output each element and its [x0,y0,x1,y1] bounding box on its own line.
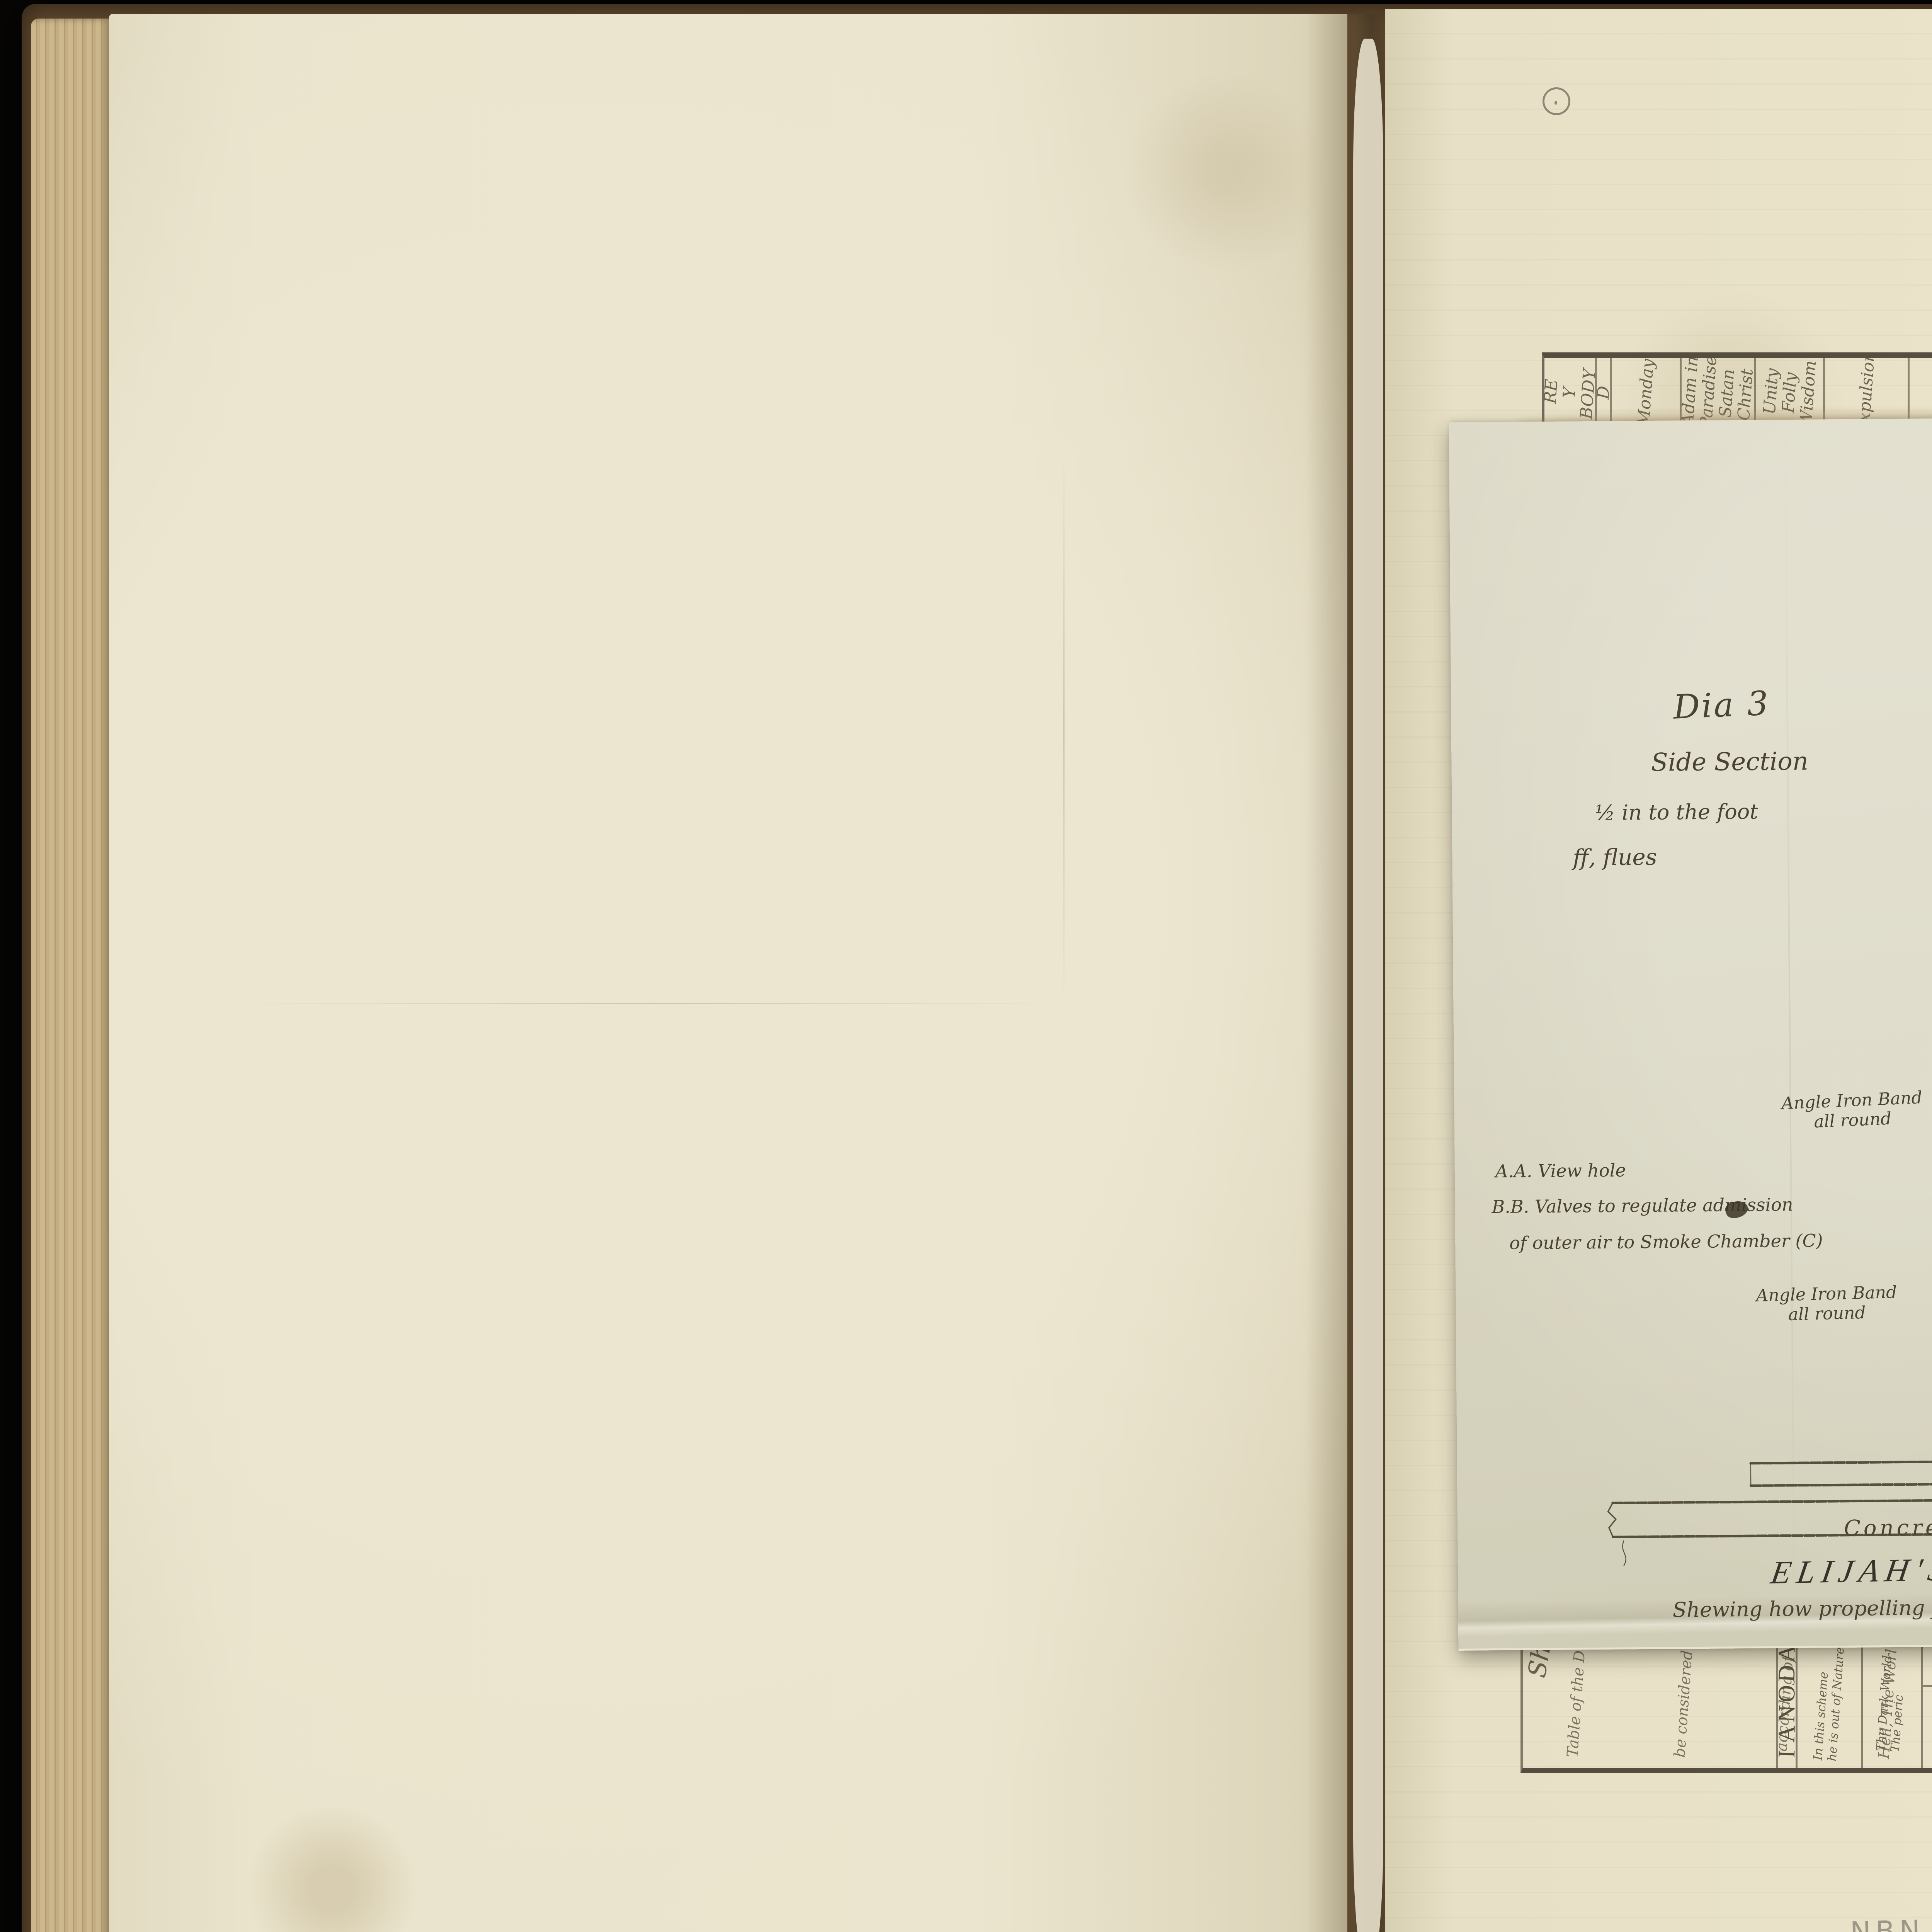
caption-title: ELIJAH'S CHARIOT. [1768,1547,1932,1591]
table-column-label: RE Y BODY [1542,366,1599,420]
adonai-letter: O [1777,1685,1796,1702]
loose-diagram-sheet: Dia 3 Side Section ½ in to the foot ff, … [1449,415,1932,1651]
left-blank-page [109,14,1347,1932]
fold-crease-horizontal [232,1003,1066,1004]
bottom-table-strip: Table of the Dbe consideredaccording ofH… [1520,1639,1932,1773]
table-text-line: Table of the D [1564,1650,1588,1757]
legend-outer-air: of outer air to Smoke Chamber (C) [1509,1230,1823,1253]
scheme-note-cell: In this scheme he is out of Nature [1798,1639,1863,1768]
caption-subtitle: Shewing how propelling force is obtained… [1672,1595,1932,1622]
eternal-nature-columns: T ET 1 Rapacious ER 2 [1923,1639,1932,1768]
fold-crease-vertical [1063,448,1065,1009]
adonai-letter: I [1777,1750,1796,1758]
scheme-note: In this scheme he is out of Nature [1811,1646,1847,1762]
pencil-circle-mark [1543,87,1570,115]
table-text-block: Table of the Dbe consideredaccording ofH… [1523,1639,1778,1768]
adonai-letter: D [1777,1665,1796,1682]
furnace-side-section-drawing [1449,415,1932,1649]
diagram-subtitle: Side Section [1633,747,1827,777]
band-note-lower: Angle Iron Band all round [1741,1282,1912,1326]
band-note-upper: Angle Iron Band all round [1763,1087,1932,1134]
column-letters: ET [1929,1719,1932,1747]
table-text-line: be considered [1671,1650,1696,1758]
flues-note: ff, flues [1573,844,1697,871]
concrete-label: Concrete [1844,1515,1932,1541]
adonai-letter: A [1777,1725,1796,1743]
table-column-label: D [1594,385,1613,400]
adonai-letter: N [1777,1705,1796,1723]
archival-book-scan: 5 CH 4 RE Y BODY D Monday Adam in Paradi… [0,0,1932,1932]
torn-page-stub [1353,39,1383,1932]
legend-view-hole: A.A. View hole [1495,1160,1626,1182]
diagram-title: Dia 3 [1667,684,1776,727]
dark-world-cell: The Dark World The peric [1863,1639,1923,1768]
dark-world-note: The Dark World The peric [1874,1655,1910,1752]
letter-column: T ET 1 [1923,1639,1932,1768]
page-block-fore-edge-left [31,19,111,1932]
scale-note: ½ in to the foot [1595,799,1819,825]
legend-valves: B.B. Valves to regulate admission [1492,1194,1793,1217]
